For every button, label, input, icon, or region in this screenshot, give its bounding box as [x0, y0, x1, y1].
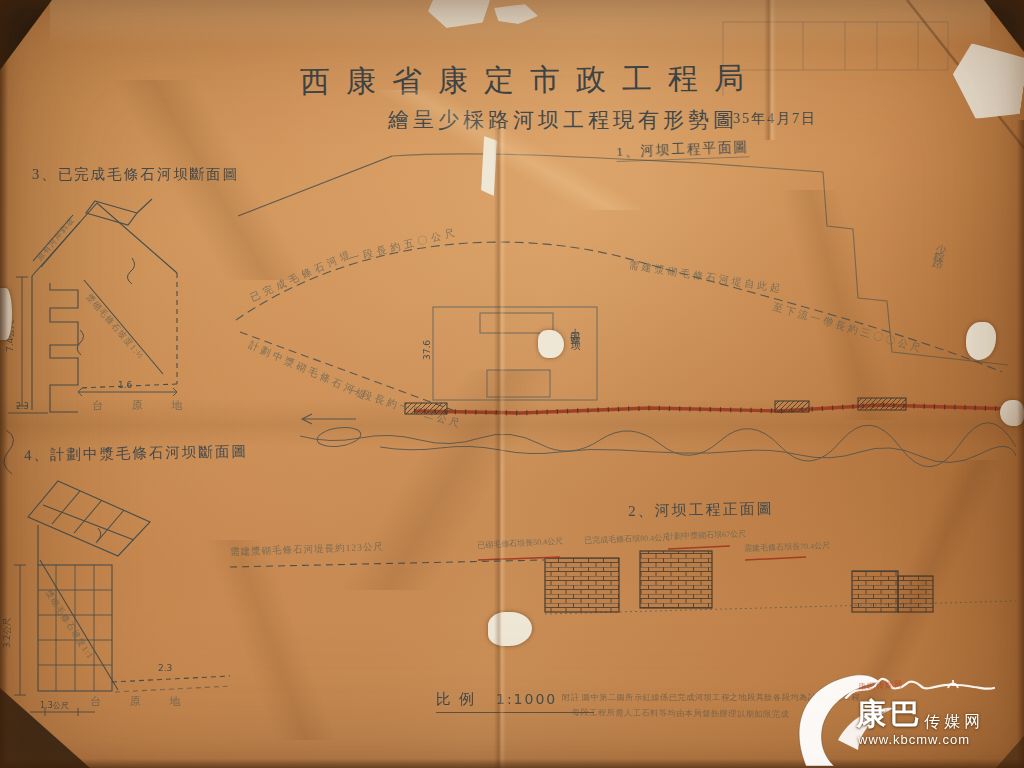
section-planned-height-dim: 3.2公尺 [2, 617, 14, 648]
watermark-name-sub: 传媒网 [924, 712, 984, 733]
map-date: 35年4月7日 [733, 110, 817, 128]
paper-tear-patch [538, 330, 564, 358]
section-done-lines [4, 199, 177, 474]
section-planned-bottom-dim: 1.3公尺 [40, 700, 69, 711]
section-done-side-dim: 2.3 [16, 402, 29, 411]
scale-label: 比例 [436, 691, 482, 707]
watermark-name-main: 康巴 [856, 694, 924, 735]
section-planned-base-dim: 2.3 [158, 663, 172, 673]
scanned-drawing-sheet: 西康省康定市政工程局 繪呈少棌路河坝工程現有形勢圖 35年4月7日 1、河坝工程… [0, 0, 1024, 768]
section-done-base-dim: 1.6 [118, 380, 132, 390]
building-name-label: 土郎草坝 [568, 320, 582, 336]
bureau-title: 西康省康定市政工程局 [300, 58, 760, 103]
section-done-ground-label: 台 原 地 [92, 398, 196, 413]
figure-label-section-done: 3、已完成毛條石河坝斷面圖 [32, 165, 239, 184]
note-line: 每段工程所需人工石料等均由本局督飭辦理以期如限完成 [572, 707, 789, 720]
elevation-lines [230, 546, 1016, 614]
watermark: 康巴传媒网 康巴 传媒网 www.kbcmw.com [780, 666, 1024, 768]
map-title: 繪呈少棌路河坝工程現有形勢圖 [388, 106, 738, 134]
watermark-url: www.kbcmw.com [858, 732, 970, 747]
plan-dimension: 37.6 [422, 340, 432, 360]
paper-tear-patch [1000, 400, 1024, 426]
paper-tear-patch [0, 288, 12, 340]
river-lines [300, 423, 1016, 467]
figure-label-section-planned: 4、計劃中漿毛條石河坝斷面圖 [24, 442, 248, 465]
scale-value: 1:1000 [496, 691, 557, 707]
figure-label-front: 2、河坝工程正面圖 [628, 499, 774, 521]
section-planned-ground-label: 台 原 地 [90, 694, 194, 709]
